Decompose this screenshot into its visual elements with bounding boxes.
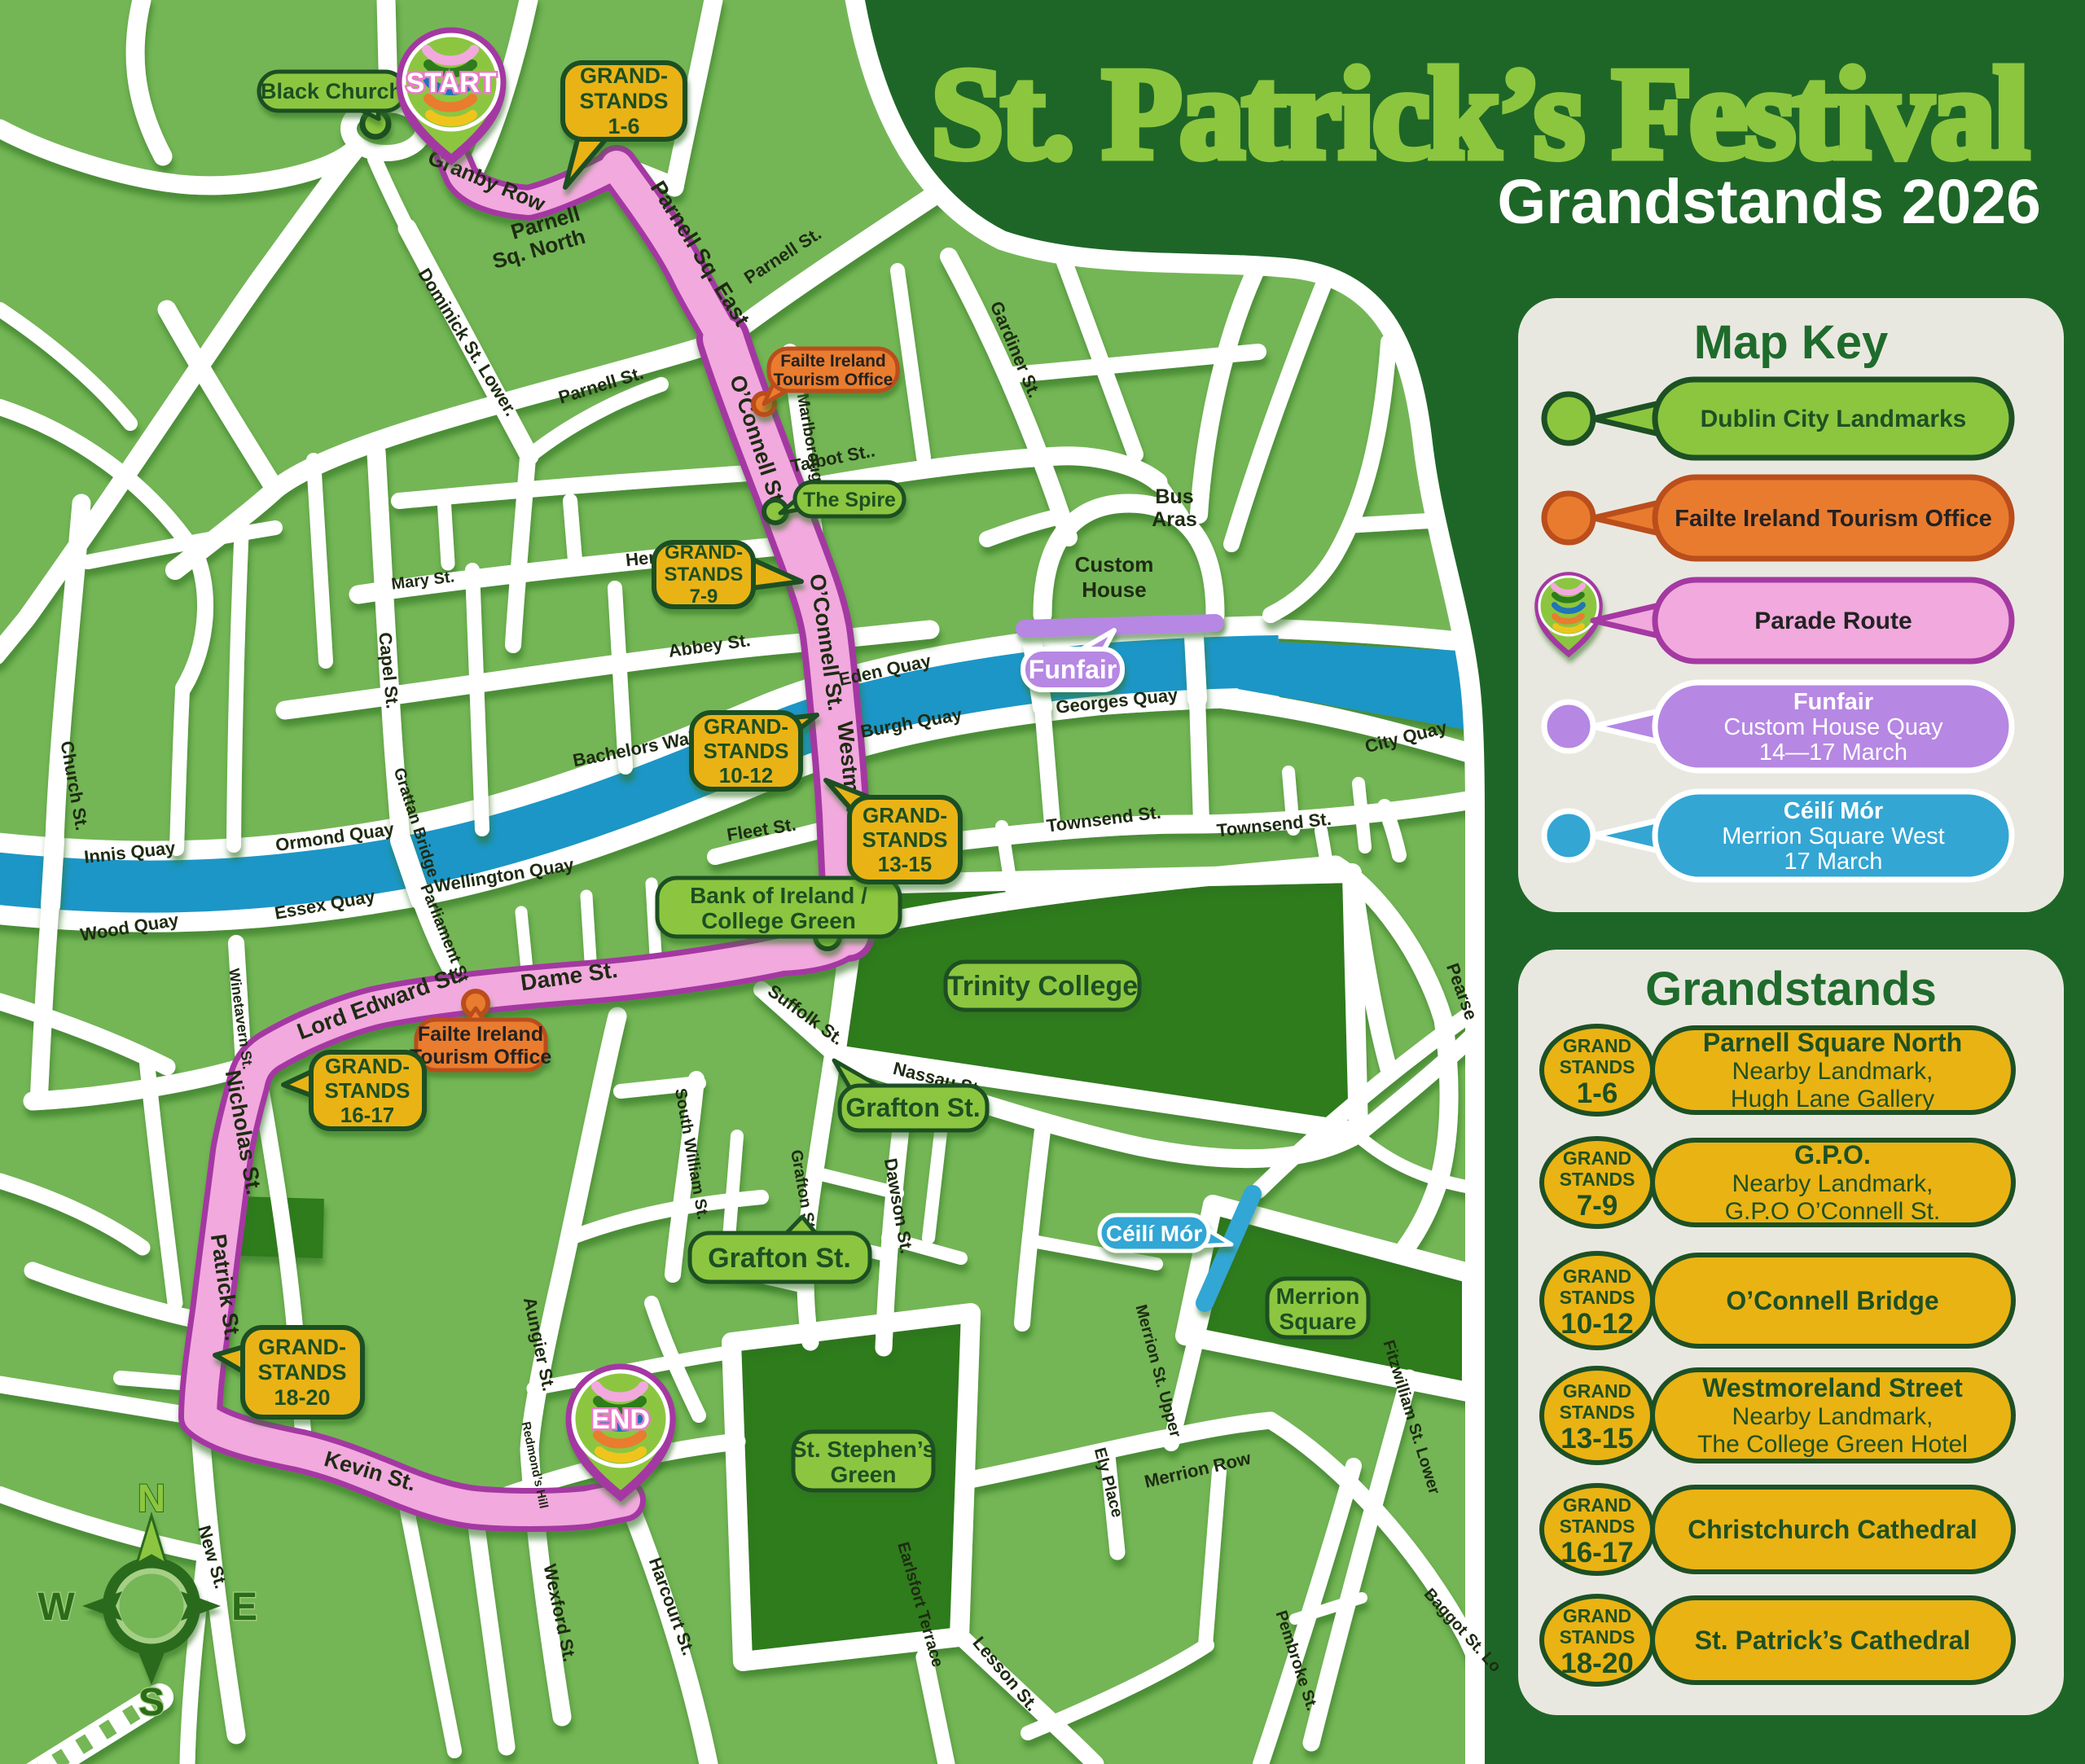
svg-text:Nearby Landmark,: Nearby Landmark, [1732, 1170, 1934, 1197]
svg-text:GRAND: GRAND [1563, 1147, 1631, 1169]
svg-text:17 March: 17 March [1784, 849, 1883, 875]
svg-text:18-20: 18-20 [1560, 1648, 1634, 1679]
svg-text:7-9: 7-9 [1577, 1190, 1618, 1222]
svg-text:Tourism Office: Tourism Office [410, 1046, 552, 1068]
svg-text:Map Key: Map Key [1694, 316, 1889, 369]
svg-text:STANDS: STANDS [325, 1078, 410, 1103]
svg-text:Céilí Mór: Céilí Mór [1784, 798, 1883, 824]
svg-text:18-20: 18-20 [274, 1385, 330, 1410]
svg-text:Dublin City Landmarks: Dublin City Landmarks [1701, 406, 1967, 432]
svg-text:13-15: 13-15 [1560, 1423, 1634, 1455]
svg-text:Failte Ireland: Failte Ireland [780, 352, 886, 371]
svg-text:Custom House Quay: Custom House Quay [1723, 714, 1943, 740]
svg-text:13-15: 13-15 [878, 852, 933, 876]
svg-text:W: W [37, 1586, 75, 1629]
svg-text:N: N [138, 1477, 166, 1520]
svg-text:House: House [1082, 577, 1146, 602]
svg-text:Square: Square [1280, 1309, 1357, 1334]
svg-text:Trinity College: Trinity College [947, 971, 1138, 1002]
svg-text:Green: Green [831, 1462, 897, 1487]
svg-text:1-6: 1-6 [608, 114, 639, 138]
svg-text:16-17: 16-17 [340, 1103, 395, 1127]
svg-text:Black Church: Black Church [261, 79, 402, 103]
svg-text:Parade Route: Parade Route [1754, 608, 1912, 634]
svg-text:Failte Ireland: Failte Ireland [418, 1023, 543, 1046]
svg-text:STANDS: STANDS [257, 1360, 346, 1384]
svg-text:Nearby Landmark,: Nearby Landmark, [1732, 1403, 1934, 1430]
svg-text:GRAND-: GRAND- [863, 803, 947, 827]
svg-text:Céilí Mór: Céilí Mór [1106, 1221, 1202, 1246]
svg-text:START: START [406, 68, 497, 99]
svg-text:St. Stephen’s: St. Stephen’s [792, 1437, 935, 1462]
svg-text:GRAND-: GRAND- [665, 542, 743, 564]
svg-text:Merrion: Merrion [1276, 1284, 1360, 1309]
svg-text:Nearby Landmark,: Nearby Landmark, [1732, 1058, 1934, 1085]
svg-text:GRAND: GRAND [1563, 1494, 1631, 1516]
svg-text:STANDS: STANDS [704, 739, 789, 763]
svg-text:GRAND: GRAND [1563, 1035, 1631, 1056]
svg-text:10-12: 10-12 [1560, 1308, 1634, 1340]
svg-text:GRAND: GRAND [1563, 1266, 1631, 1287]
svg-text:Funfair: Funfair [1793, 689, 1873, 715]
svg-text:Grandstands: Grandstands [1645, 963, 1937, 1016]
svg-text:The Spire: The Spire [803, 489, 896, 511]
svg-text:Custom: Custom [1075, 552, 1154, 577]
svg-text:Funfair: Funfair [1029, 655, 1117, 684]
svg-text:Westmoreland Street: Westmoreland Street [1702, 1373, 1963, 1402]
svg-text:Hugh Lane Gallery: Hugh Lane Gallery [1731, 1086, 1934, 1112]
svg-text:Tourism Office: Tourism Office [774, 371, 893, 389]
svg-text:Grafton St.: Grafton St. [845, 1093, 980, 1122]
svg-text:STANDS: STANDS [1560, 1169, 1635, 1190]
svg-text:END: END [591, 1404, 650, 1435]
svg-text:16-17: 16-17 [1560, 1537, 1634, 1569]
svg-text:St. Patrick’s Festival: St. Patrick’s Festival [931, 41, 2027, 186]
svg-text:GRAND-: GRAND- [580, 64, 668, 88]
svg-text:GRAND-: GRAND- [704, 714, 788, 739]
svg-text:STANDS: STANDS [1560, 1626, 1635, 1648]
svg-text:GRAND-: GRAND- [258, 1335, 346, 1359]
svg-text:The College Green Hotel: The College Green Hotel [1697, 1431, 1968, 1458]
svg-text:Bank of Ireland /: Bank of Ireland / [690, 883, 867, 908]
svg-text:GRAND: GRAND [1563, 1380, 1631, 1402]
svg-text:GRAND: GRAND [1563, 1605, 1631, 1626]
svg-text:STANDS: STANDS [1560, 1287, 1635, 1308]
svg-text:G.P.O O’Connell St.: G.P.O O’Connell St. [1725, 1198, 1941, 1225]
svg-text:STANDS: STANDS [665, 564, 744, 586]
svg-text:Grandstands 2026: Grandstands 2026 [1497, 167, 2041, 237]
svg-text:GRAND-: GRAND- [325, 1054, 410, 1078]
svg-text:14—17 March: 14—17 March [1759, 739, 1907, 766]
svg-text:College Green: College Green [701, 908, 856, 933]
svg-text:7-9: 7-9 [690, 586, 718, 608]
svg-text:E: E [231, 1586, 257, 1629]
svg-text:Aras: Aras [1152, 508, 1197, 531]
svg-text:S: S [138, 1681, 165, 1724]
svg-text:STANDS: STANDS [1560, 1516, 1635, 1537]
svg-text:STANDS: STANDS [1560, 1402, 1635, 1423]
svg-text:Christchurch Cathedral: Christchurch Cathedral [1688, 1515, 1977, 1544]
svg-text:O’Connell Bridge: O’Connell Bridge [1726, 1286, 1938, 1315]
svg-text:1-6: 1-6 [1577, 1077, 1618, 1109]
svg-text:Merrion Square West: Merrion Square West [1722, 823, 1944, 849]
svg-text:STANDS: STANDS [579, 89, 668, 113]
svg-text:STANDS: STANDS [863, 827, 948, 852]
svg-text:Parnell Square North: Parnell Square North [1703, 1028, 1962, 1057]
svg-text:G.P.O.: G.P.O. [1794, 1140, 1871, 1169]
svg-text:Failte Ireland Tourism Office: Failte Ireland Tourism Office [1675, 506, 1991, 532]
svg-text:Bus: Bus [1155, 485, 1193, 508]
svg-text:10-12: 10-12 [719, 763, 774, 788]
svg-text:Grafton St.: Grafton St. [708, 1243, 851, 1274]
svg-text:STANDS: STANDS [1560, 1056, 1635, 1077]
svg-text:St. Patrick’s Cathedral: St. Patrick’s Cathedral [1695, 1626, 1971, 1655]
